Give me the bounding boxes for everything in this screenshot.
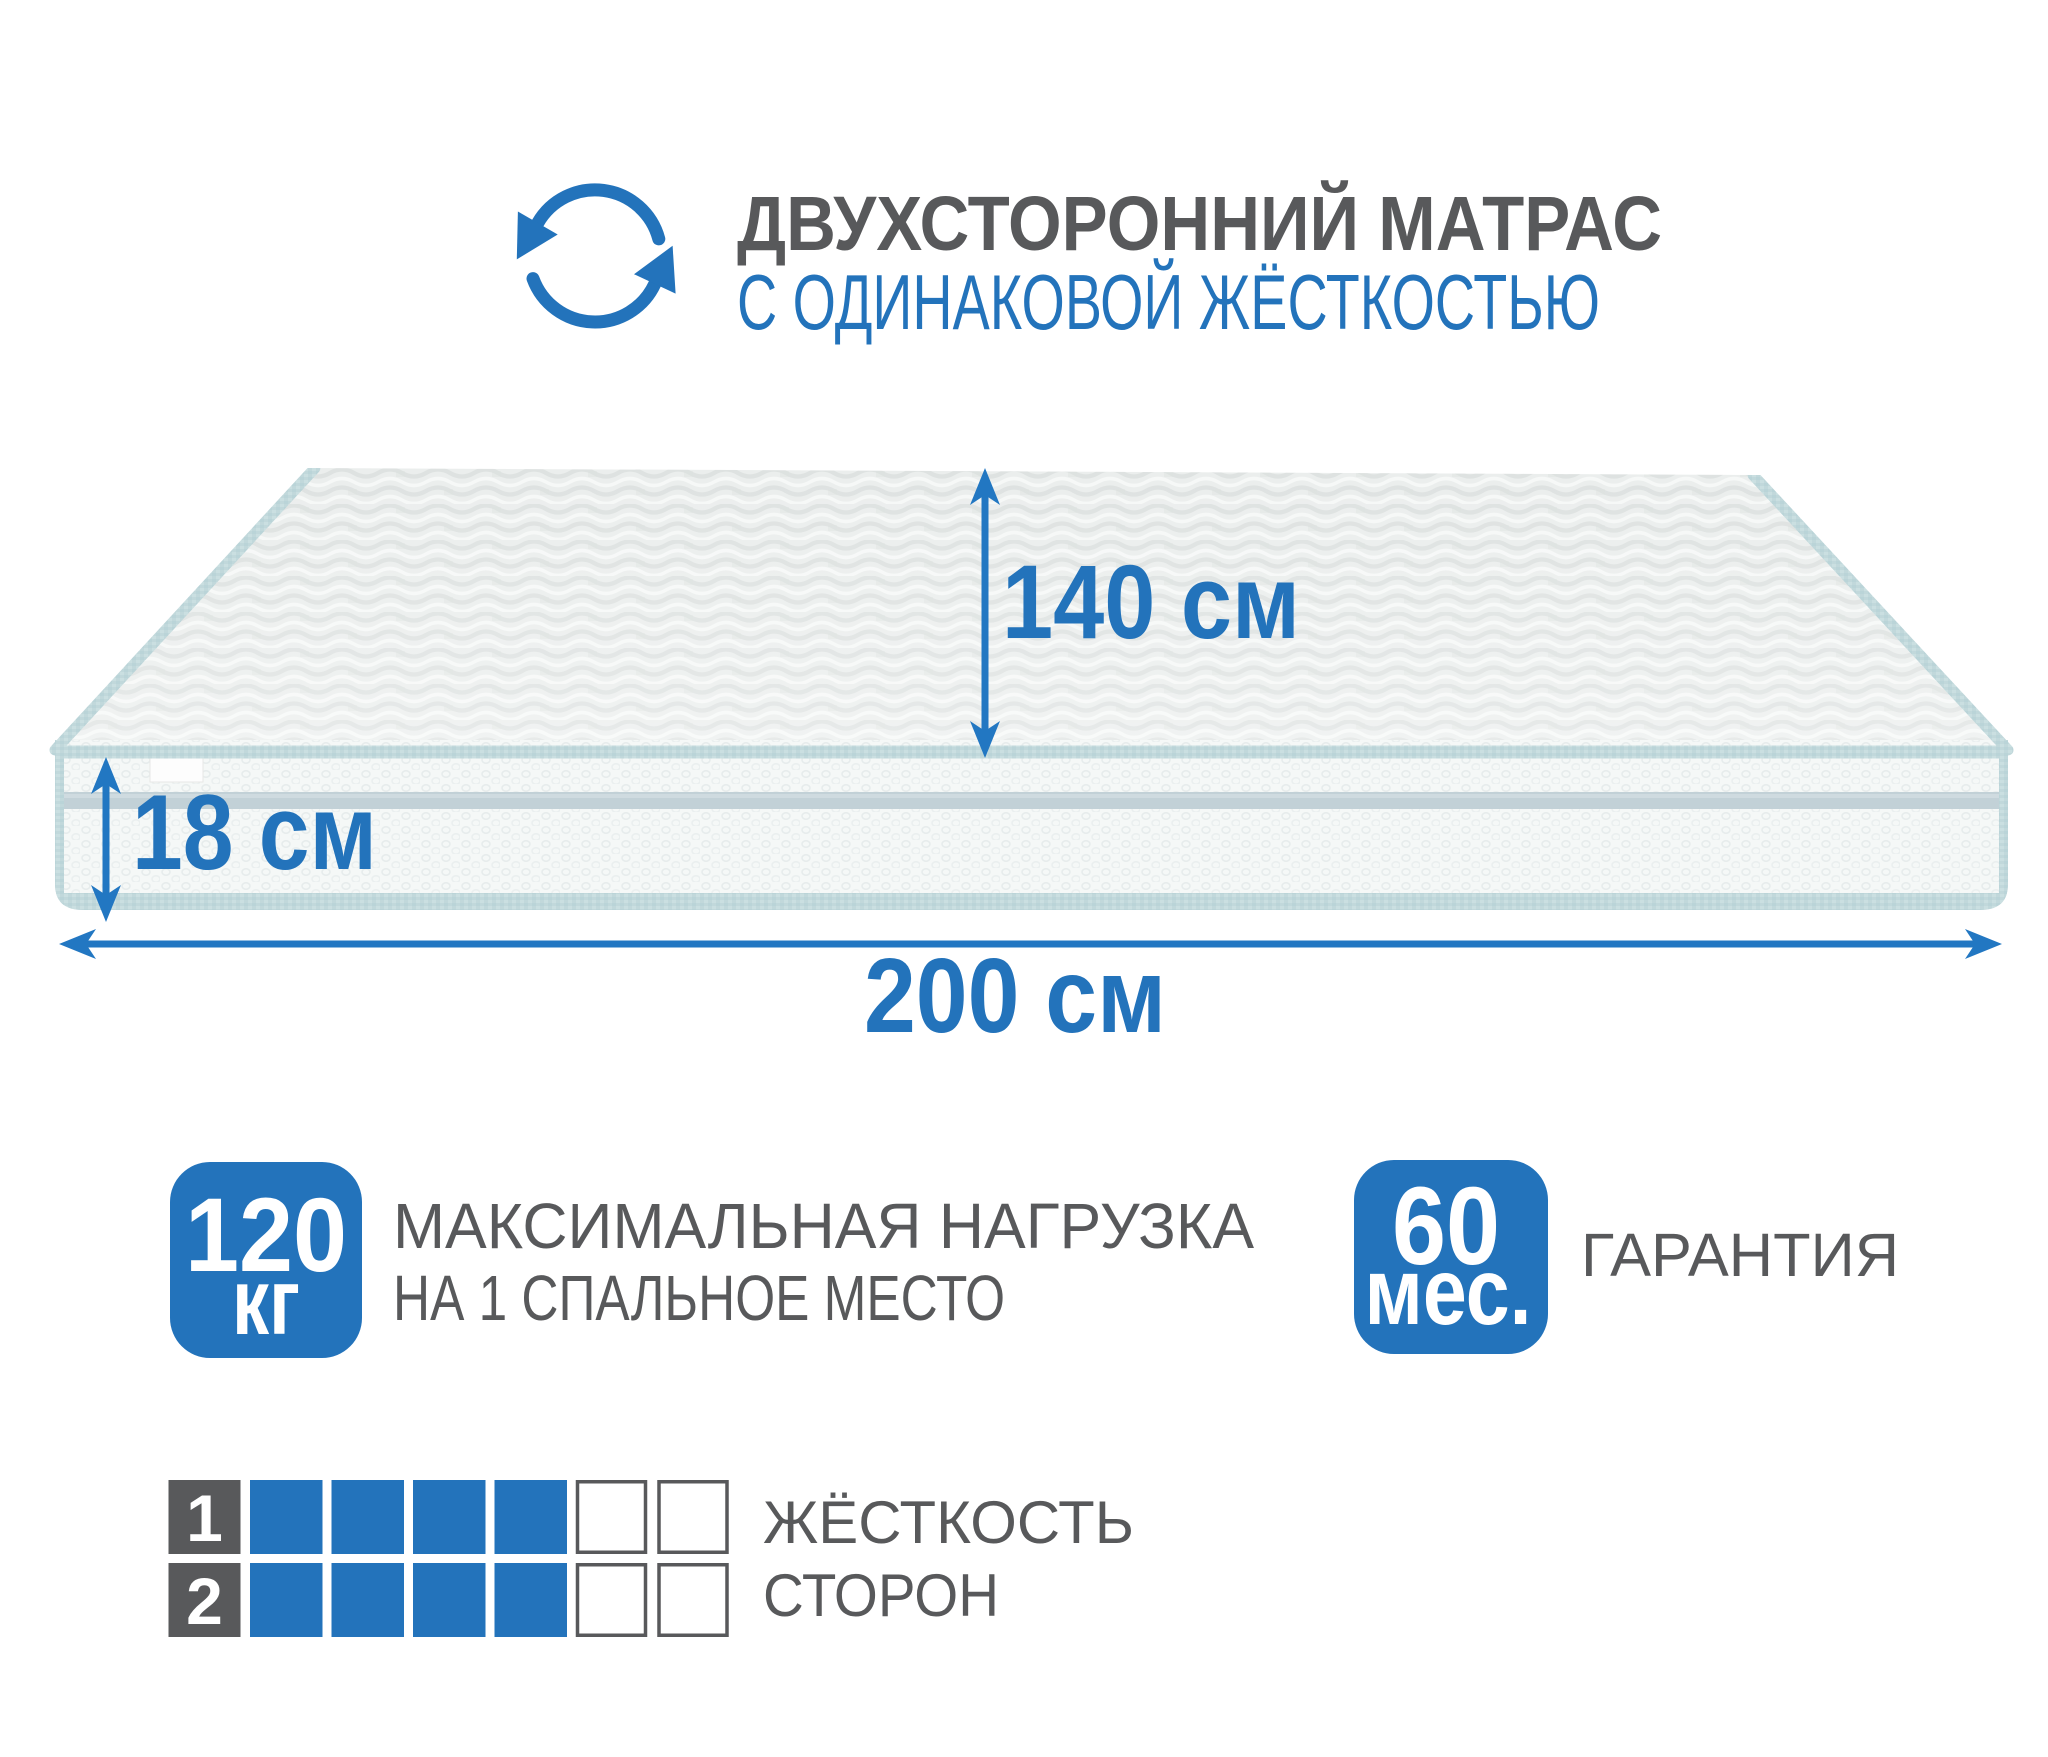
svg-text:ДВУХСТОРОННИЙ МАТРАС: ДВУХСТОРОННИЙ МАТРАС xyxy=(737,179,1662,267)
svg-text:НА 1 СПАЛЬНОЕ МЕСТО: НА 1 СПАЛЬНОЕ МЕСТО xyxy=(393,1262,1005,1334)
svg-text:1: 1 xyxy=(186,1481,223,1555)
svg-text:С ОДИНАКОВОЙ ЖЁСТКОСТЬЮ: С ОДИНАКОВОЙ ЖЁСТКОСТЬЮ xyxy=(737,258,1600,346)
svg-text:18 см: 18 см xyxy=(132,772,377,892)
svg-text:200 см: 200 см xyxy=(864,937,1166,1055)
svg-text:ГАРАНТИЯ: ГАРАНТИЯ xyxy=(1581,1221,1899,1289)
svg-text:МАКСИМАЛЬНАЯ НАГРУЗКА: МАКСИМАЛЬНАЯ НАГРУЗКА xyxy=(393,1190,1254,1262)
svg-text:кг: кг xyxy=(232,1249,300,1354)
svg-text:мес.: мес. xyxy=(1365,1239,1532,1345)
svg-text:2: 2 xyxy=(186,1564,223,1638)
svg-text:СТОРОН: СТОРОН xyxy=(763,1562,999,1629)
svg-text:ЖЁСТКОСТЬ: ЖЁСТКОСТЬ xyxy=(763,1489,1134,1556)
svg-text:140 см: 140 см xyxy=(1002,544,1300,661)
